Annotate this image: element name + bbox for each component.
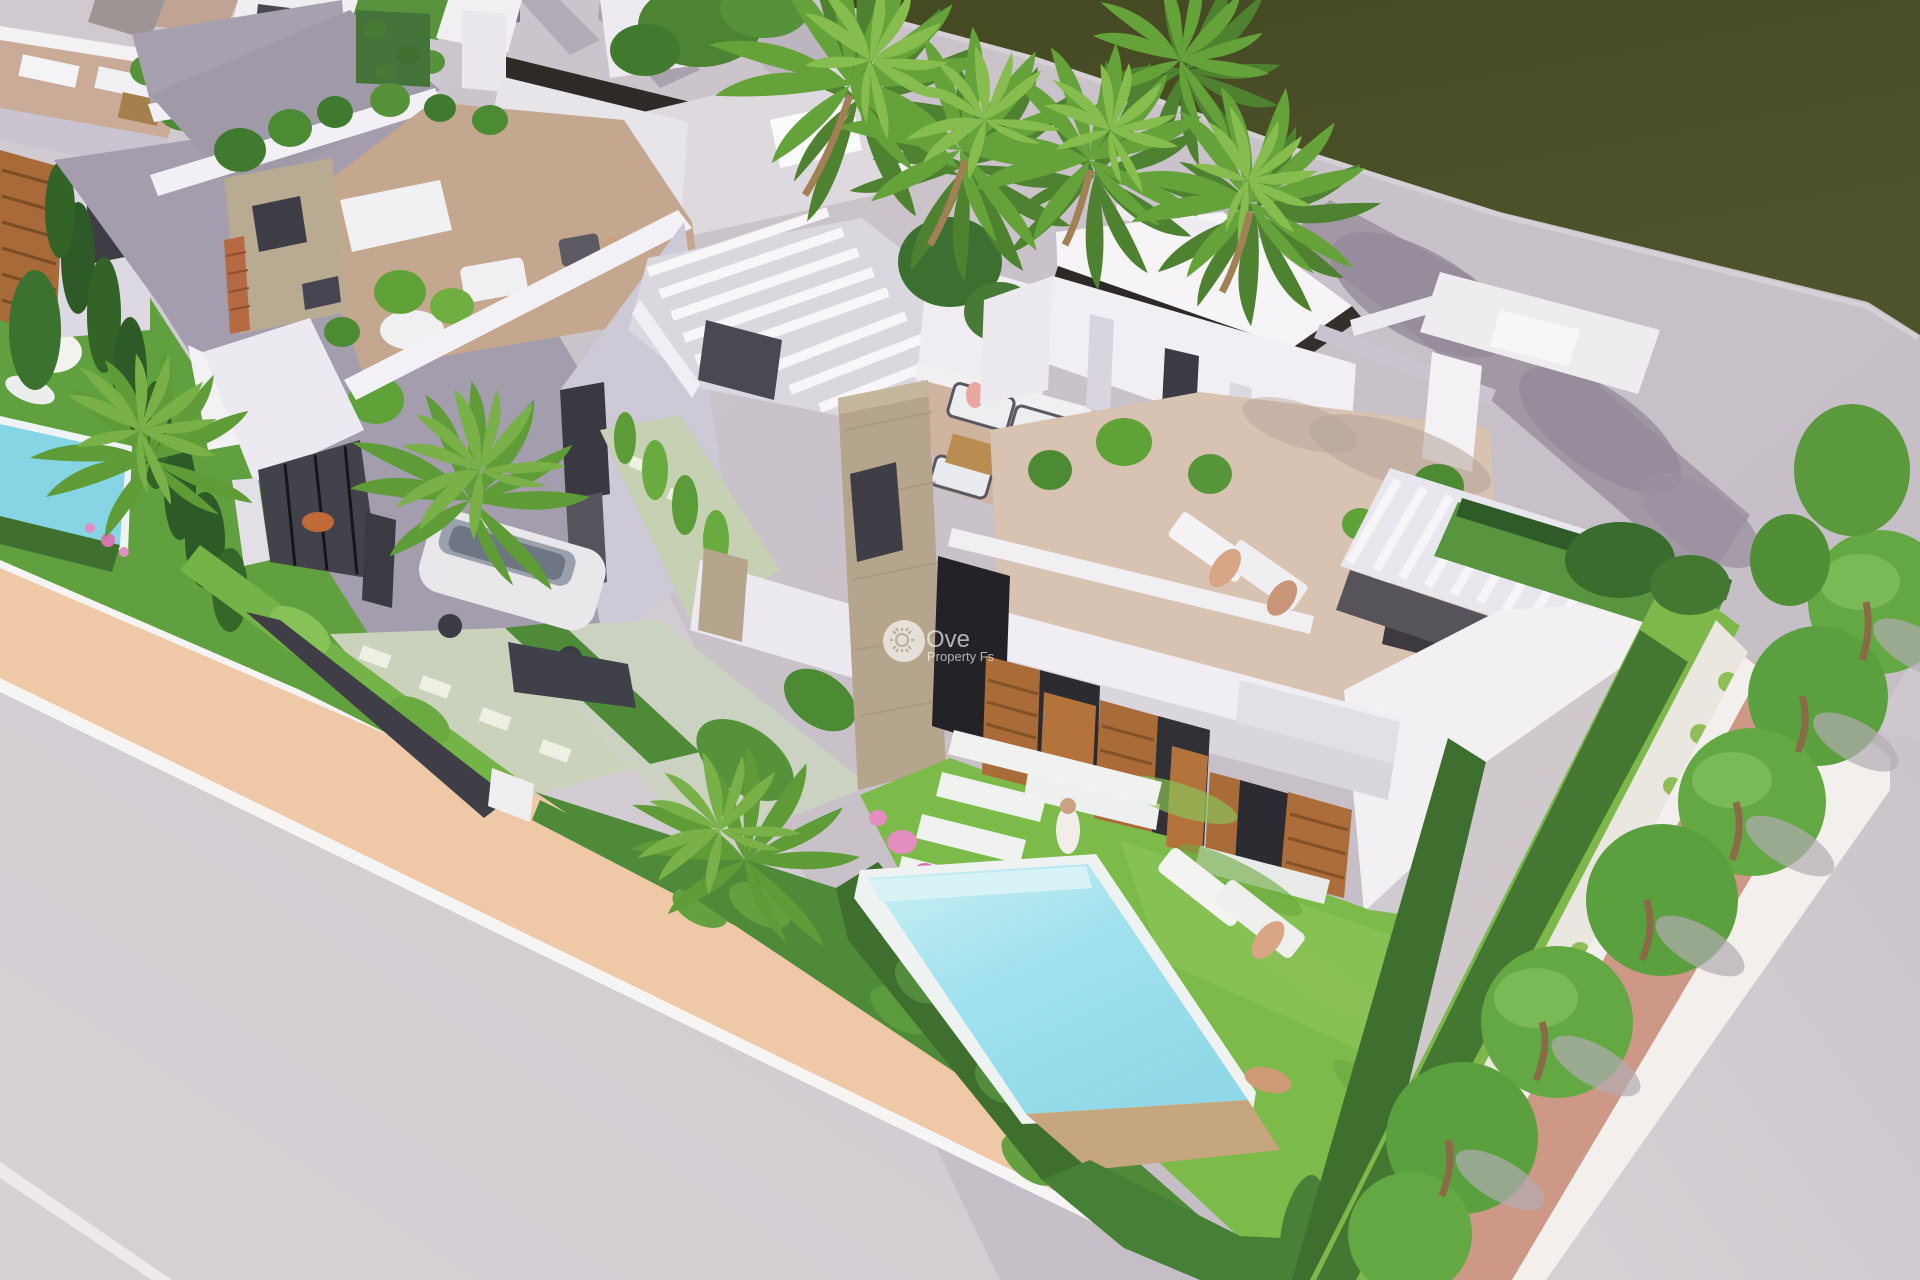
- svg-text:Property Fs: Property Fs: [927, 649, 995, 664]
